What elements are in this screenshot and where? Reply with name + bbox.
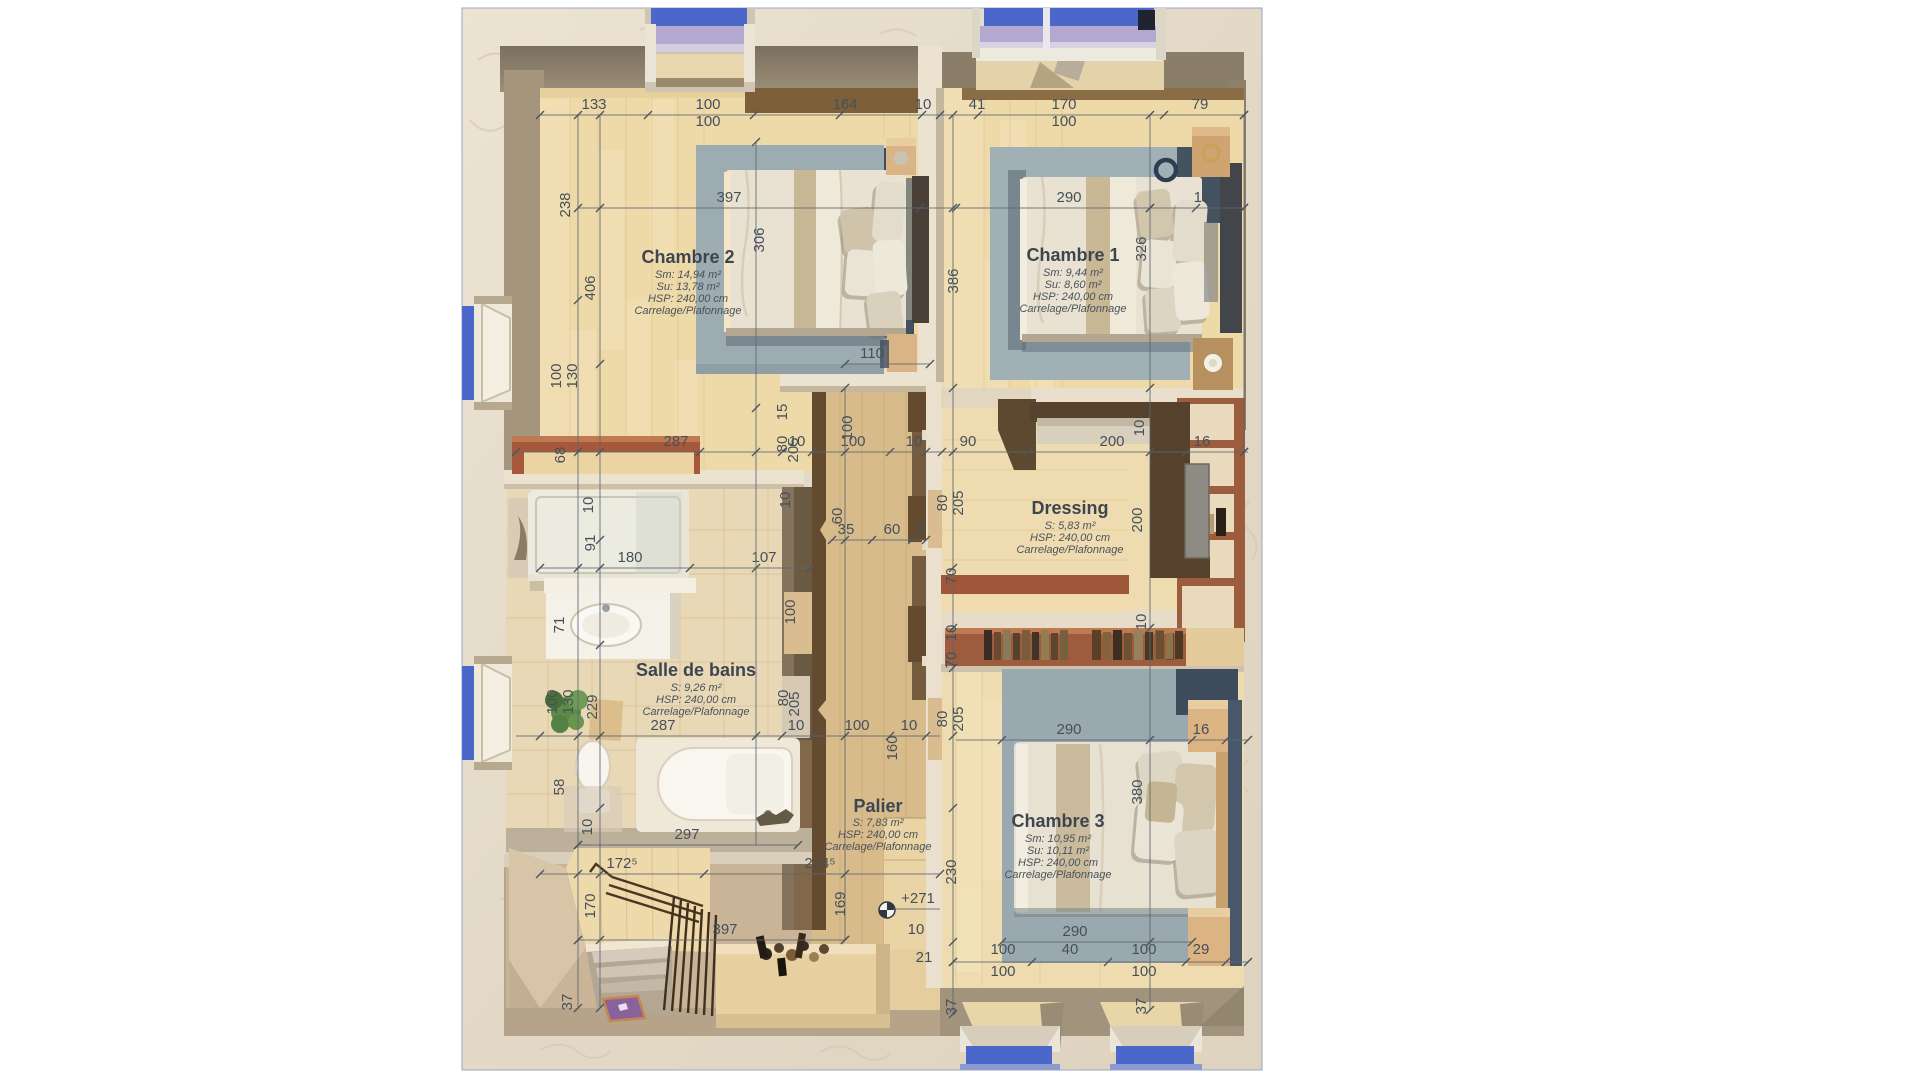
svg-text:200: 200 xyxy=(1129,507,1146,532)
svg-text:100: 100 xyxy=(990,963,1015,980)
svg-text:160: 160 xyxy=(884,735,901,760)
svg-text:397: 397 xyxy=(712,921,737,938)
svg-text:205: 205 xyxy=(785,437,802,462)
svg-text:397: 397 xyxy=(716,189,741,206)
svg-text:5: 5 xyxy=(916,521,924,538)
svg-text:205: 205 xyxy=(950,706,967,731)
svg-text:Carrelage/Plafonnage: Carrelage/Plafonnage xyxy=(1019,303,1126,315)
svg-text:Carrelage/Plafonnage: Carrelage/Plafonnage xyxy=(824,841,931,853)
svg-text:10: 10 xyxy=(908,921,925,938)
svg-text:10: 10 xyxy=(580,497,597,514)
svg-text:80: 80 xyxy=(934,711,951,728)
svg-text:Chambre 1: Chambre 1 xyxy=(1026,245,1119,265)
svg-text:10: 10 xyxy=(1133,614,1150,631)
svg-text:60: 60 xyxy=(884,521,901,538)
svg-text:16: 16 xyxy=(1193,721,1210,738)
svg-text:230: 230 xyxy=(943,859,960,884)
svg-text:S: 5,83 m²: S: 5,83 m² xyxy=(1045,520,1096,532)
svg-text:Chambre 2: Chambre 2 xyxy=(641,247,734,267)
svg-text:91: 91 xyxy=(582,535,599,552)
svg-text:386: 386 xyxy=(945,268,962,293)
svg-text:37: 37 xyxy=(943,999,960,1016)
svg-text:70: 70 xyxy=(943,568,960,585)
svg-text:326: 326 xyxy=(1133,236,1150,261)
svg-text:Sm: 9,44 m²: Sm: 9,44 m² xyxy=(1043,267,1103,279)
svg-text:290: 290 xyxy=(1056,721,1081,738)
svg-text:297: 297 xyxy=(674,826,699,843)
svg-text:HSP: 240,00 cm: HSP: 240,00 cm xyxy=(1033,291,1113,303)
svg-text:Salle de bains: Salle de bains xyxy=(636,660,756,680)
svg-text:Sm: 14,94 m²: Sm: 14,94 m² xyxy=(655,269,721,281)
svg-text:380: 380 xyxy=(1129,779,1146,804)
svg-text:HSP: 240,00 cm: HSP: 240,00 cm xyxy=(656,694,736,706)
svg-text:41: 41 xyxy=(969,96,986,113)
svg-text:71: 71 xyxy=(551,617,568,634)
svg-text:290: 290 xyxy=(1062,923,1087,940)
svg-text:164: 164 xyxy=(832,96,857,113)
svg-text:110: 110 xyxy=(860,345,884,362)
svg-text:130: 130 xyxy=(564,363,581,388)
svg-text:HSP: 240,00 cm: HSP: 240,00 cm xyxy=(838,829,918,841)
svg-text:Sm: 10,95 m²: Sm: 10,95 m² xyxy=(1025,833,1091,845)
svg-text:Carrelage/Plafonnage: Carrelage/Plafonnage xyxy=(1004,869,1111,881)
svg-text:100: 100 xyxy=(782,599,799,624)
svg-text:16: 16 xyxy=(1194,433,1211,450)
svg-text:100: 100 xyxy=(695,96,720,113)
svg-text:287: 287 xyxy=(650,717,675,734)
svg-text:10: 10 xyxy=(943,625,960,642)
svg-text:169: 169 xyxy=(832,891,849,916)
svg-text:10: 10 xyxy=(788,717,805,734)
svg-text:HSP: 240,00 cm: HSP: 240,00 cm xyxy=(648,293,728,305)
svg-text:HSP: 240,00 cm: HSP: 240,00 cm xyxy=(1018,857,1098,869)
svg-text:S: 7,83 m²: S: 7,83 m² xyxy=(853,817,904,829)
svg-text:229: 229 xyxy=(584,694,601,719)
svg-text:290: 290 xyxy=(1056,189,1081,206)
svg-text:29: 29 xyxy=(1193,941,1210,958)
svg-text:Dressing: Dressing xyxy=(1031,498,1108,518)
svg-text:406: 406 xyxy=(582,275,599,300)
svg-text:130: 130 xyxy=(560,689,577,714)
svg-text:10: 10 xyxy=(579,819,596,836)
svg-text:205: 205 xyxy=(786,691,803,716)
svg-text:100: 100 xyxy=(695,113,720,130)
svg-text:40: 40 xyxy=(1062,941,1079,958)
svg-text:+271: +271 xyxy=(901,890,935,907)
svg-text:170: 170 xyxy=(1051,96,1076,113)
svg-text:200: 200 xyxy=(1099,433,1124,450)
svg-text:224⁵: 224⁵ xyxy=(804,855,835,872)
svg-text:180: 180 xyxy=(617,549,642,566)
svg-text:170: 170 xyxy=(582,893,599,918)
svg-text:16: 16 xyxy=(1194,189,1211,206)
svg-text:21: 21 xyxy=(916,949,933,966)
svg-text:Palier: Palier xyxy=(853,796,902,816)
svg-text:Carrelage/Plafonnage: Carrelage/Plafonnage xyxy=(642,706,749,718)
svg-text:15: 15 xyxy=(774,404,791,421)
svg-text:58: 58 xyxy=(551,779,568,796)
svg-text:100: 100 xyxy=(839,415,856,440)
svg-text:10: 10 xyxy=(915,96,932,113)
svg-text:100: 100 xyxy=(990,941,1015,958)
svg-text:Su: 13,78 m²: Su: 13,78 m² xyxy=(657,281,720,293)
svg-text:133: 133 xyxy=(581,96,606,113)
svg-text:Carrelage/Plafonnage: Carrelage/Plafonnage xyxy=(1016,544,1123,556)
svg-text:100: 100 xyxy=(544,689,561,714)
svg-text:80: 80 xyxy=(934,495,951,512)
svg-text:306: 306 xyxy=(751,227,768,252)
svg-text:287: 287 xyxy=(663,433,688,450)
svg-text:60: 60 xyxy=(829,508,846,525)
svg-text:100: 100 xyxy=(548,363,565,388)
svg-text:10: 10 xyxy=(777,492,794,509)
svg-text:Su: 8,60 m²: Su: 8,60 m² xyxy=(1045,279,1102,291)
svg-text:79: 79 xyxy=(1192,96,1209,113)
svg-text:HSP: 240,00 cm: HSP: 240,00 cm xyxy=(1030,532,1110,544)
svg-text:107: 107 xyxy=(751,549,776,566)
svg-text:172⁵: 172⁵ xyxy=(606,855,637,872)
svg-text:Carrelage/Plafonnage: Carrelage/Plafonnage xyxy=(634,305,741,317)
svg-text:10: 10 xyxy=(901,717,918,734)
svg-text:10: 10 xyxy=(1131,420,1148,437)
svg-text:S: 9,26 m²: S: 9,26 m² xyxy=(671,682,722,694)
svg-text:205: 205 xyxy=(950,490,967,515)
svg-text:100: 100 xyxy=(1051,113,1076,130)
svg-text:10: 10 xyxy=(906,433,923,450)
svg-text:Su: 10,11 m²: Su: 10,11 m² xyxy=(1027,845,1089,857)
svg-text:37: 37 xyxy=(1133,998,1150,1015)
svg-text:90: 90 xyxy=(960,433,977,450)
svg-text:37: 37 xyxy=(559,994,576,1011)
svg-text:100: 100 xyxy=(1131,941,1156,958)
svg-text:238: 238 xyxy=(557,192,574,217)
svg-text:68: 68 xyxy=(552,447,569,464)
svg-text:70: 70 xyxy=(943,652,960,669)
svg-text:100: 100 xyxy=(844,717,869,734)
svg-text:100: 100 xyxy=(1131,963,1156,980)
svg-text:Chambre 3: Chambre 3 xyxy=(1011,811,1104,831)
